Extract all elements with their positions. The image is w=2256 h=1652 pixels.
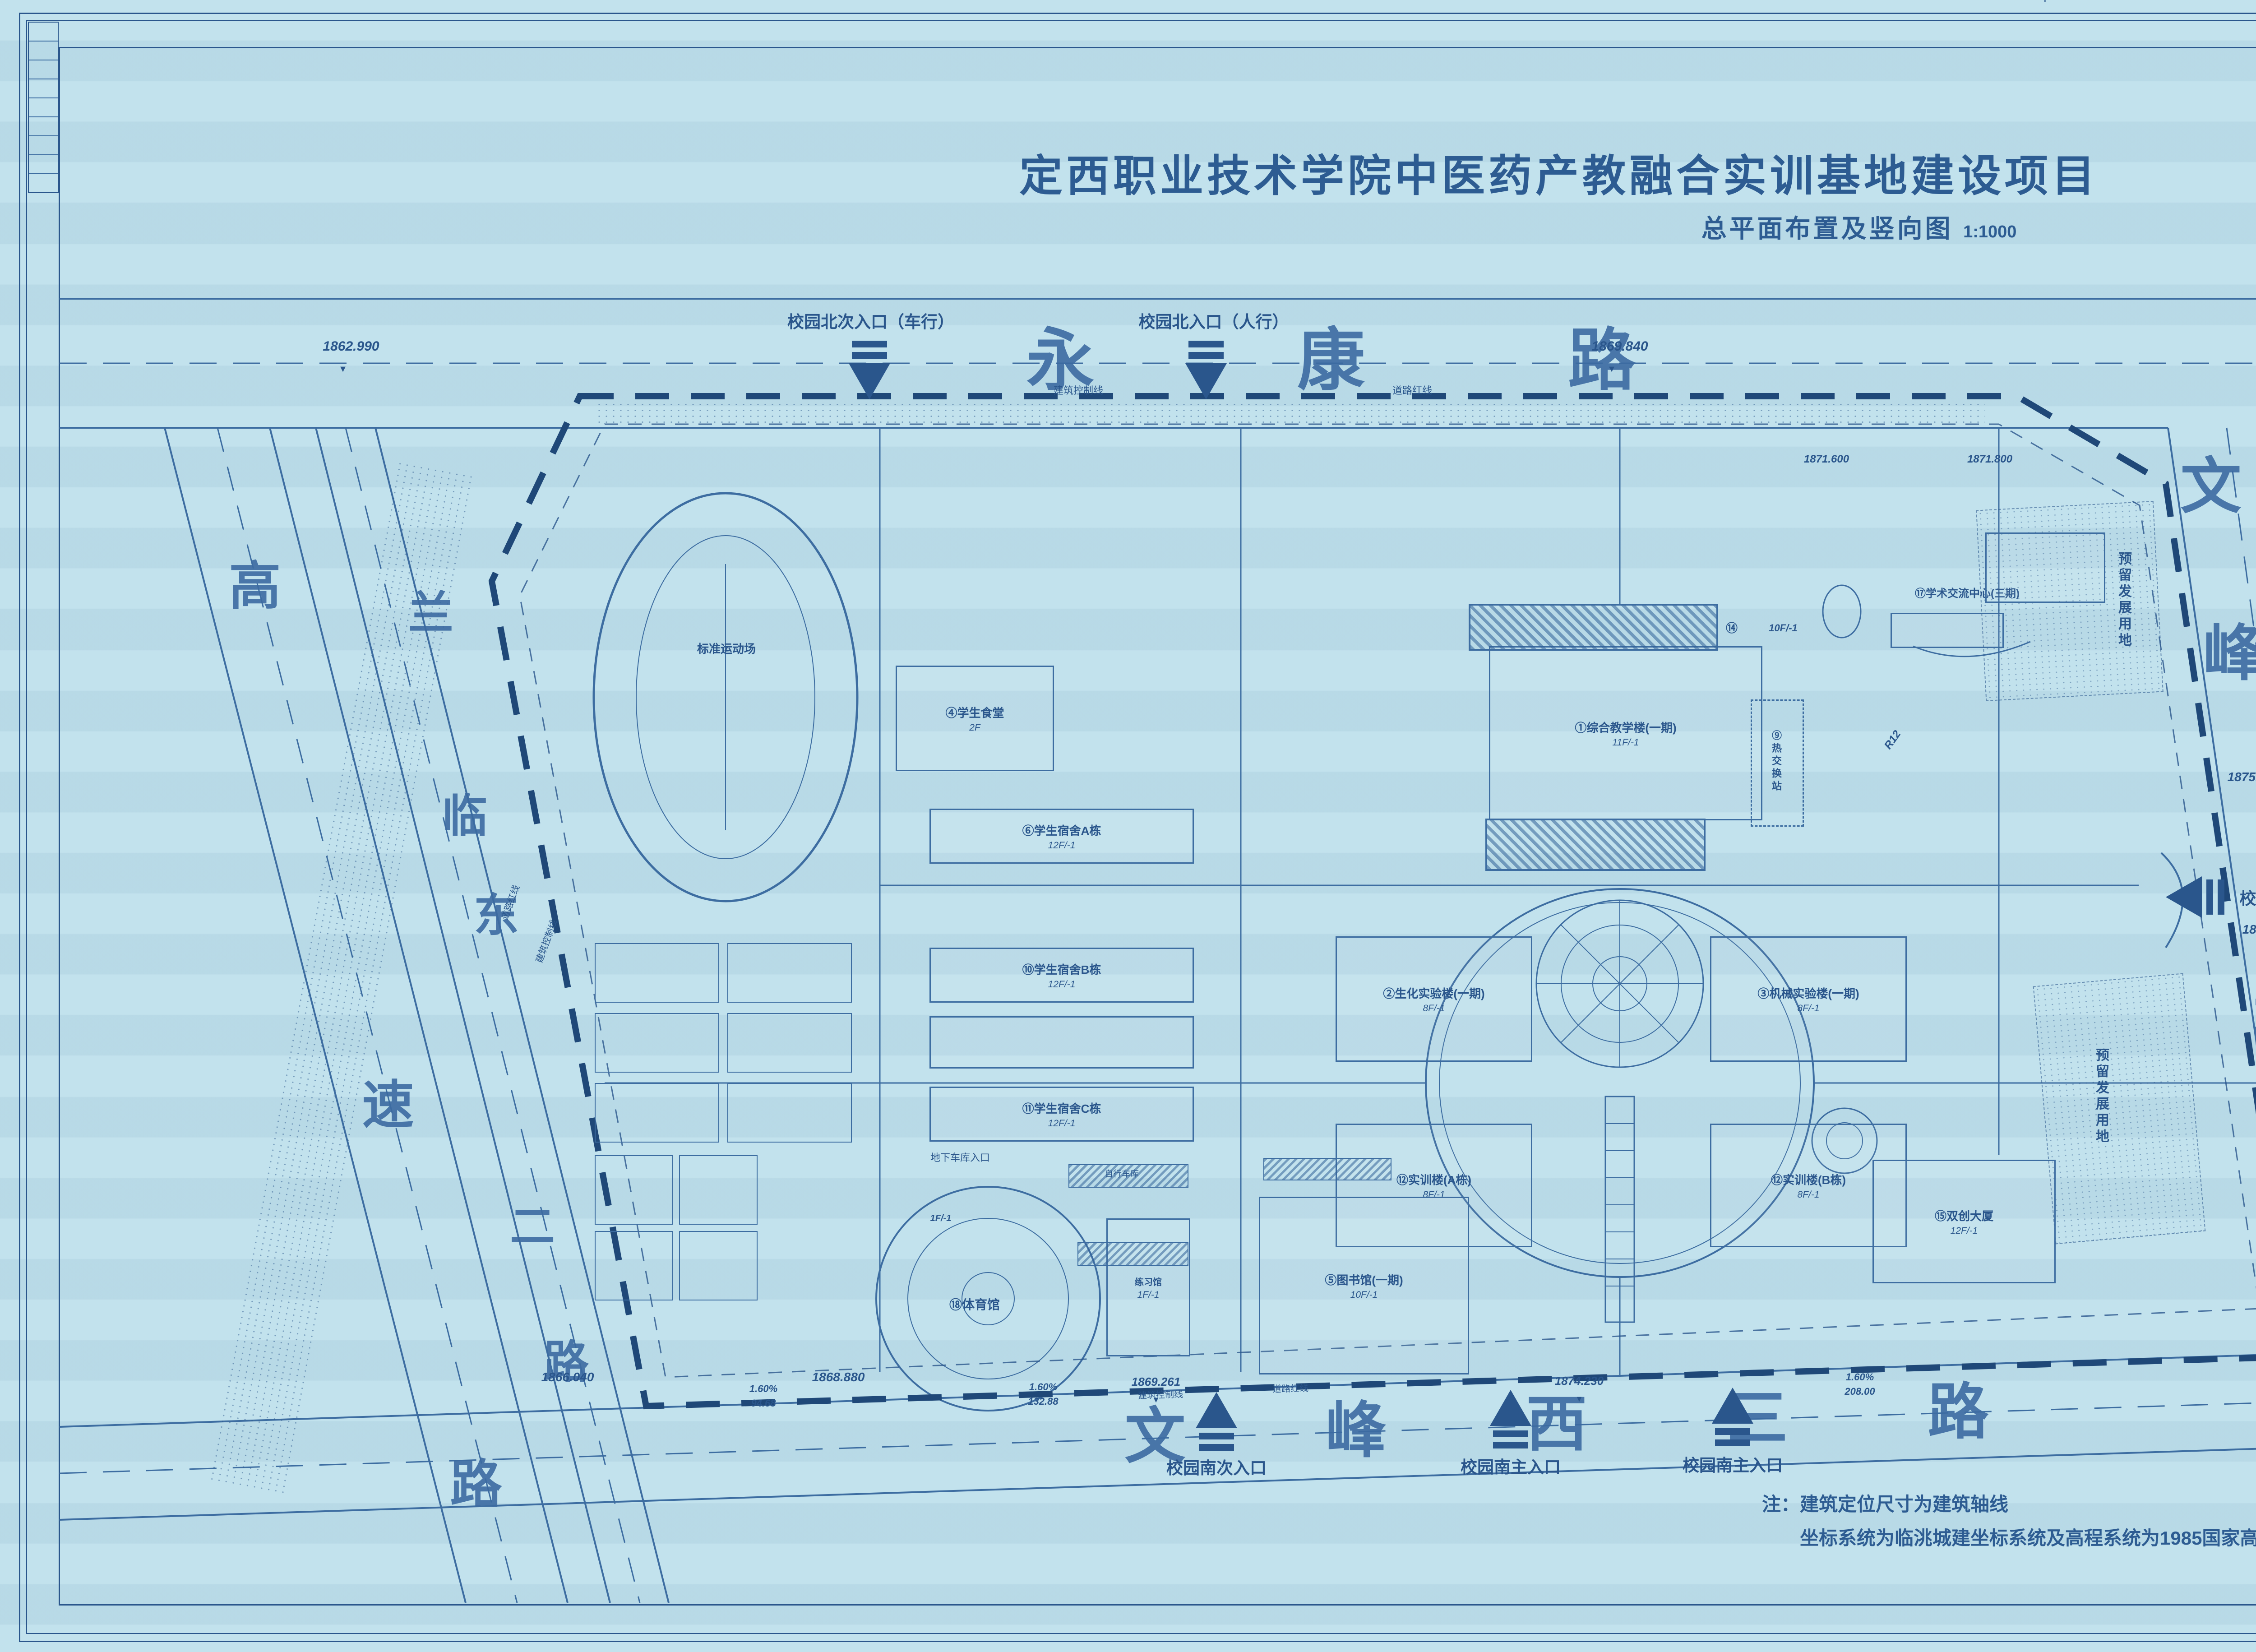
item <box>2206 879 2213 915</box>
annotation-garage-entry: 地下车库入口 <box>930 1153 990 1163</box>
label-gymnasium: ⑱体育馆 <box>949 1299 1000 1311</box>
slope: 94.68 <box>751 1398 776 1408</box>
item <box>1199 1433 1234 1439</box>
road-name-expressway: 速 <box>362 1080 414 1132</box>
drawing-sheet: 定西职业技术学院中医药产教融合实训基地建设项目 总平面布置及竖向图 1:1000… <box>0 0 2256 1652</box>
floors-tag: 10F/-1 <box>1769 623 1798 633</box>
road-name-expressway: 路 <box>450 1459 502 1511</box>
building-mech-lab: ③机械实验楼(一期)8F/-1 <box>1710 936 1907 1062</box>
road-name-wenfeng-north: 文 <box>2181 457 2242 518</box>
road-name-yongkang: 康 <box>1297 327 1365 395</box>
basketball-court <box>595 943 719 1003</box>
tennis-court <box>595 1231 673 1300</box>
basketball-court <box>727 943 852 1003</box>
item <box>1196 1392 1237 1428</box>
label-reserved-land: 预留发展用地 <box>2094 1048 2108 1145</box>
slope: 1.60% <box>1846 1372 1874 1382</box>
elevation-marker: ▼ <box>1575 1395 1583 1403</box>
annotation-control-line: 建筑控制线 <box>1138 1390 1183 1400</box>
entrance-east-label: 校园东入口 <box>2240 885 2256 909</box>
building-new-trainbase-south <box>1485 819 1706 871</box>
item <box>849 363 890 399</box>
road-name-wenfeng-west3: 峰 <box>1326 1401 1387 1462</box>
entrance-north-pedestrian-label: 校园北入口（人行） <box>1139 308 1289 333</box>
elevation: 1868.880 <box>812 1371 865 1384</box>
building-dorm-b: ⑩学生宿舍B栋12F/-1 <box>929 948 1194 1003</box>
item <box>1493 1430 1528 1437</box>
building-dorm-b-floors: 12F/-1 <box>1048 979 1076 990</box>
bike-shed <box>1077 1242 1188 1266</box>
entrance-south-main-2-label: 校园南主入口 <box>1683 1452 1783 1476</box>
note-line-1: 注：建筑定位尺寸为建筑轴线 <box>1762 1489 2256 1517</box>
elevation: 1871.600 <box>1804 454 1849 465</box>
radius-tag: R12 <box>1883 729 1903 751</box>
tennis-court <box>679 1231 758 1300</box>
road-name-wenfeng-west3: 西 <box>1526 1395 1587 1456</box>
annotation-red-line: 道路红线 <box>1272 1384 1309 1394</box>
building-dorm-slab <box>929 1016 1194 1069</box>
item <box>852 341 887 347</box>
building-dorm-c-floors: 12F/-1 <box>1048 1118 1076 1129</box>
entrance-south-main-1-glyph <box>1490 1390 1531 1448</box>
basketball-court <box>595 1013 719 1073</box>
road-name-lanlin-east2: 二 <box>510 1205 555 1250</box>
slope: 1.60% <box>1029 1382 1057 1392</box>
elevation: 1862.990 <box>323 340 379 353</box>
item <box>1188 341 1224 347</box>
item <box>1188 352 1224 359</box>
annotation-red-line: 道路红线 <box>1392 386 1432 396</box>
building-bio-lab-label: ②生化实验楼(一期) <box>1383 985 1484 1001</box>
entrance-north-secondary-label: 校园北次入口（车行） <box>787 308 954 333</box>
elevation: 1874.230 <box>1555 1375 1604 1387</box>
slope: 1.60% <box>749 1384 777 1394</box>
road-name-wenfeng-north: 北 <box>2253 985 2256 1046</box>
elevation: 1875.314 <box>2228 771 2256 783</box>
entrance-north-pedestrian-glyph <box>1185 341 1227 399</box>
basketball-court <box>727 1083 852 1143</box>
entrance-south-secondary-label: 校园南次入口 <box>1166 1454 1267 1479</box>
note-line-2: 坐标系统为临洮城建坐标系统及高程系统为1985国家高程基准 <box>1800 1523 2256 1550</box>
entrance-east-glyph <box>2166 876 2224 918</box>
tennis-court <box>595 1155 673 1225</box>
entrance-south-main-2-glyph <box>1712 1388 1753 1446</box>
tennis-court <box>679 1155 758 1225</box>
item <box>1715 1439 1750 1446</box>
building-innovation-tower: ⑮双创大厦12F/-1 <box>1872 1160 2056 1283</box>
slope: 208.00 <box>1845 1387 1875 1397</box>
building-training-a-label: ⑫实训楼(A栋) <box>1396 1171 1471 1188</box>
bike-shed <box>1263 1158 1392 1180</box>
item <box>1493 1442 1528 1448</box>
building-dorm-a-label: ⑥学生宿舍A栋 <box>1022 822 1101 838</box>
building-canteen-floors: 2F <box>969 722 980 733</box>
road-name-lanlin-east2: 兰 <box>408 591 453 636</box>
building-dorm-a: ⑥学生宿舍A栋12F/-1 <box>929 809 1194 864</box>
building-new-trainbase-north <box>1469 604 1718 651</box>
elevation: 1869.261 <box>1132 1376 1180 1388</box>
building-teaching-label: ①综合教学楼(一期) <box>1575 719 1676 736</box>
building-canteen-label: ④学生食堂 <box>945 704 1004 721</box>
item <box>2166 876 2202 918</box>
floors-tag: 1F/-1 <box>930 1214 952 1223</box>
road-name-yongkang: 路 <box>1568 327 1636 395</box>
building-dorm-c-label: ⑪学生宿舍C栋 <box>1022 1100 1101 1116</box>
building-dorm-c: ⑪学生宿舍C栋12F/-1 <box>929 1087 1194 1142</box>
slope: 132.88 <box>1028 1397 1058 1407</box>
building-innovation-tower-label: ⑮双创大厦 <box>1935 1207 1993 1224</box>
road-name-wenfeng-west3: 路 <box>1928 1383 1989 1444</box>
building-canteen: ④学生食堂2F <box>896 666 1054 771</box>
entrance-south-secondary-glyph <box>1196 1392 1237 1451</box>
building-northeast <box>1985 532 2105 603</box>
basketball-court <box>727 1013 852 1073</box>
building-training-b-label: ⑫实训楼(B栋) <box>1771 1171 1846 1188</box>
building-innovation-tower-floors: 12F/-1 <box>1951 1226 1978 1236</box>
item <box>1712 1388 1753 1424</box>
building-practice-hall-floors: 1F/-1 <box>1137 1290 1159 1300</box>
building-mech-lab-floors: 8F/-1 <box>1797 1003 1819 1014</box>
item <box>1185 363 1227 399</box>
bike-shed <box>1068 1164 1188 1188</box>
road-name-wenfeng-north: 峰 <box>2203 624 2256 685</box>
item <box>1490 1390 1531 1426</box>
label-running-track: 标准运动场 <box>697 643 756 655</box>
plan-notes: 注：建筑定位尺寸为建筑轴线 坐标系统为临洮城建坐标系统及高程系统为1985国家高… <box>1762 1489 2256 1550</box>
building-teaching-floors: 11F/-1 <box>1612 737 1639 748</box>
label-reserved-land: 预留发展用地 <box>2117 551 2130 649</box>
building-practice-hall: 练习馆1F/-1 <box>1106 1218 1190 1356</box>
annotation-control-line: 建筑控制线 <box>535 919 559 964</box>
building-academic-bar <box>1891 613 2004 648</box>
building-practice-hall-label: 练习馆 <box>1135 1275 1162 1288</box>
building-teaching: ①综合教学楼(一期)11F/-1 <box>1489 646 1762 820</box>
entrance-north-secondary-glyph <box>849 341 890 399</box>
basketball-court <box>595 1083 719 1143</box>
building-bio-lab-floors: 8F/-1 <box>1423 1003 1445 1014</box>
elevation: 1869.840 <box>1591 340 1648 353</box>
structure-heat-exchange <box>1751 699 1804 827</box>
elevation: 1866.040 <box>541 1371 594 1384</box>
entrance-south-main-1-label: 校园南主入口 <box>1461 1453 1561 1478</box>
road-name-lanlin-east2: 临 <box>442 794 487 839</box>
building-training-b-floors: 8F/-1 <box>1797 1189 1819 1200</box>
elevation-marker: ▼ <box>338 365 347 374</box>
item <box>1715 1428 1750 1435</box>
site-plan: 永康路文峰北路文峰西三路高速路兰临东二路1862.9901869.8401873… <box>0 0 2256 1652</box>
building-dorm-b-label: ⑩学生宿舍B栋 <box>1022 961 1101 977</box>
item <box>1199 1444 1234 1451</box>
item <box>852 352 887 359</box>
elevation: 1871.800 <box>1967 454 2012 465</box>
elevation: 1875.903 <box>2242 923 2256 936</box>
label-building-14: ⑭ <box>1726 622 1738 634</box>
annotation-control-line: 建筑控制线 <box>1054 386 1103 396</box>
elevation-marker: ▼ <box>1607 365 1616 374</box>
building-mech-lab-label: ③机械实验楼(一期) <box>1757 985 1859 1001</box>
item <box>2218 879 2224 915</box>
road-name-expressway: 高 <box>229 561 281 613</box>
building-bio-lab: ②生化实验楼(一期)8F/-1 <box>1336 936 1532 1062</box>
building-library: ⑤图书馆(一期)10F/-1 <box>1259 1197 1469 1374</box>
building-dorm-a-floors: 12F/-1 <box>1048 840 1076 851</box>
building-library-floors: 10F/-1 <box>1350 1290 1378 1300</box>
building-library-label: ⑤图书馆(一期) <box>1325 1271 1403 1288</box>
